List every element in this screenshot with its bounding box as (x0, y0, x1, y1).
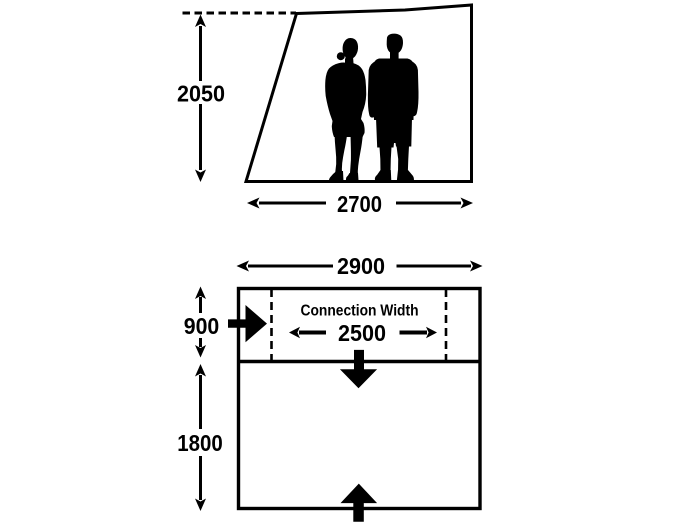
svg-text:2900: 2900 (337, 253, 385, 279)
svg-text:2050: 2050 (177, 81, 225, 107)
svg-text:1800: 1800 (177, 430, 223, 456)
svg-text:2700: 2700 (337, 191, 382, 217)
svg-text:Connection Width: Connection Width (301, 303, 419, 320)
svg-text:900: 900 (184, 313, 220, 339)
svg-text:2500: 2500 (338, 320, 386, 346)
